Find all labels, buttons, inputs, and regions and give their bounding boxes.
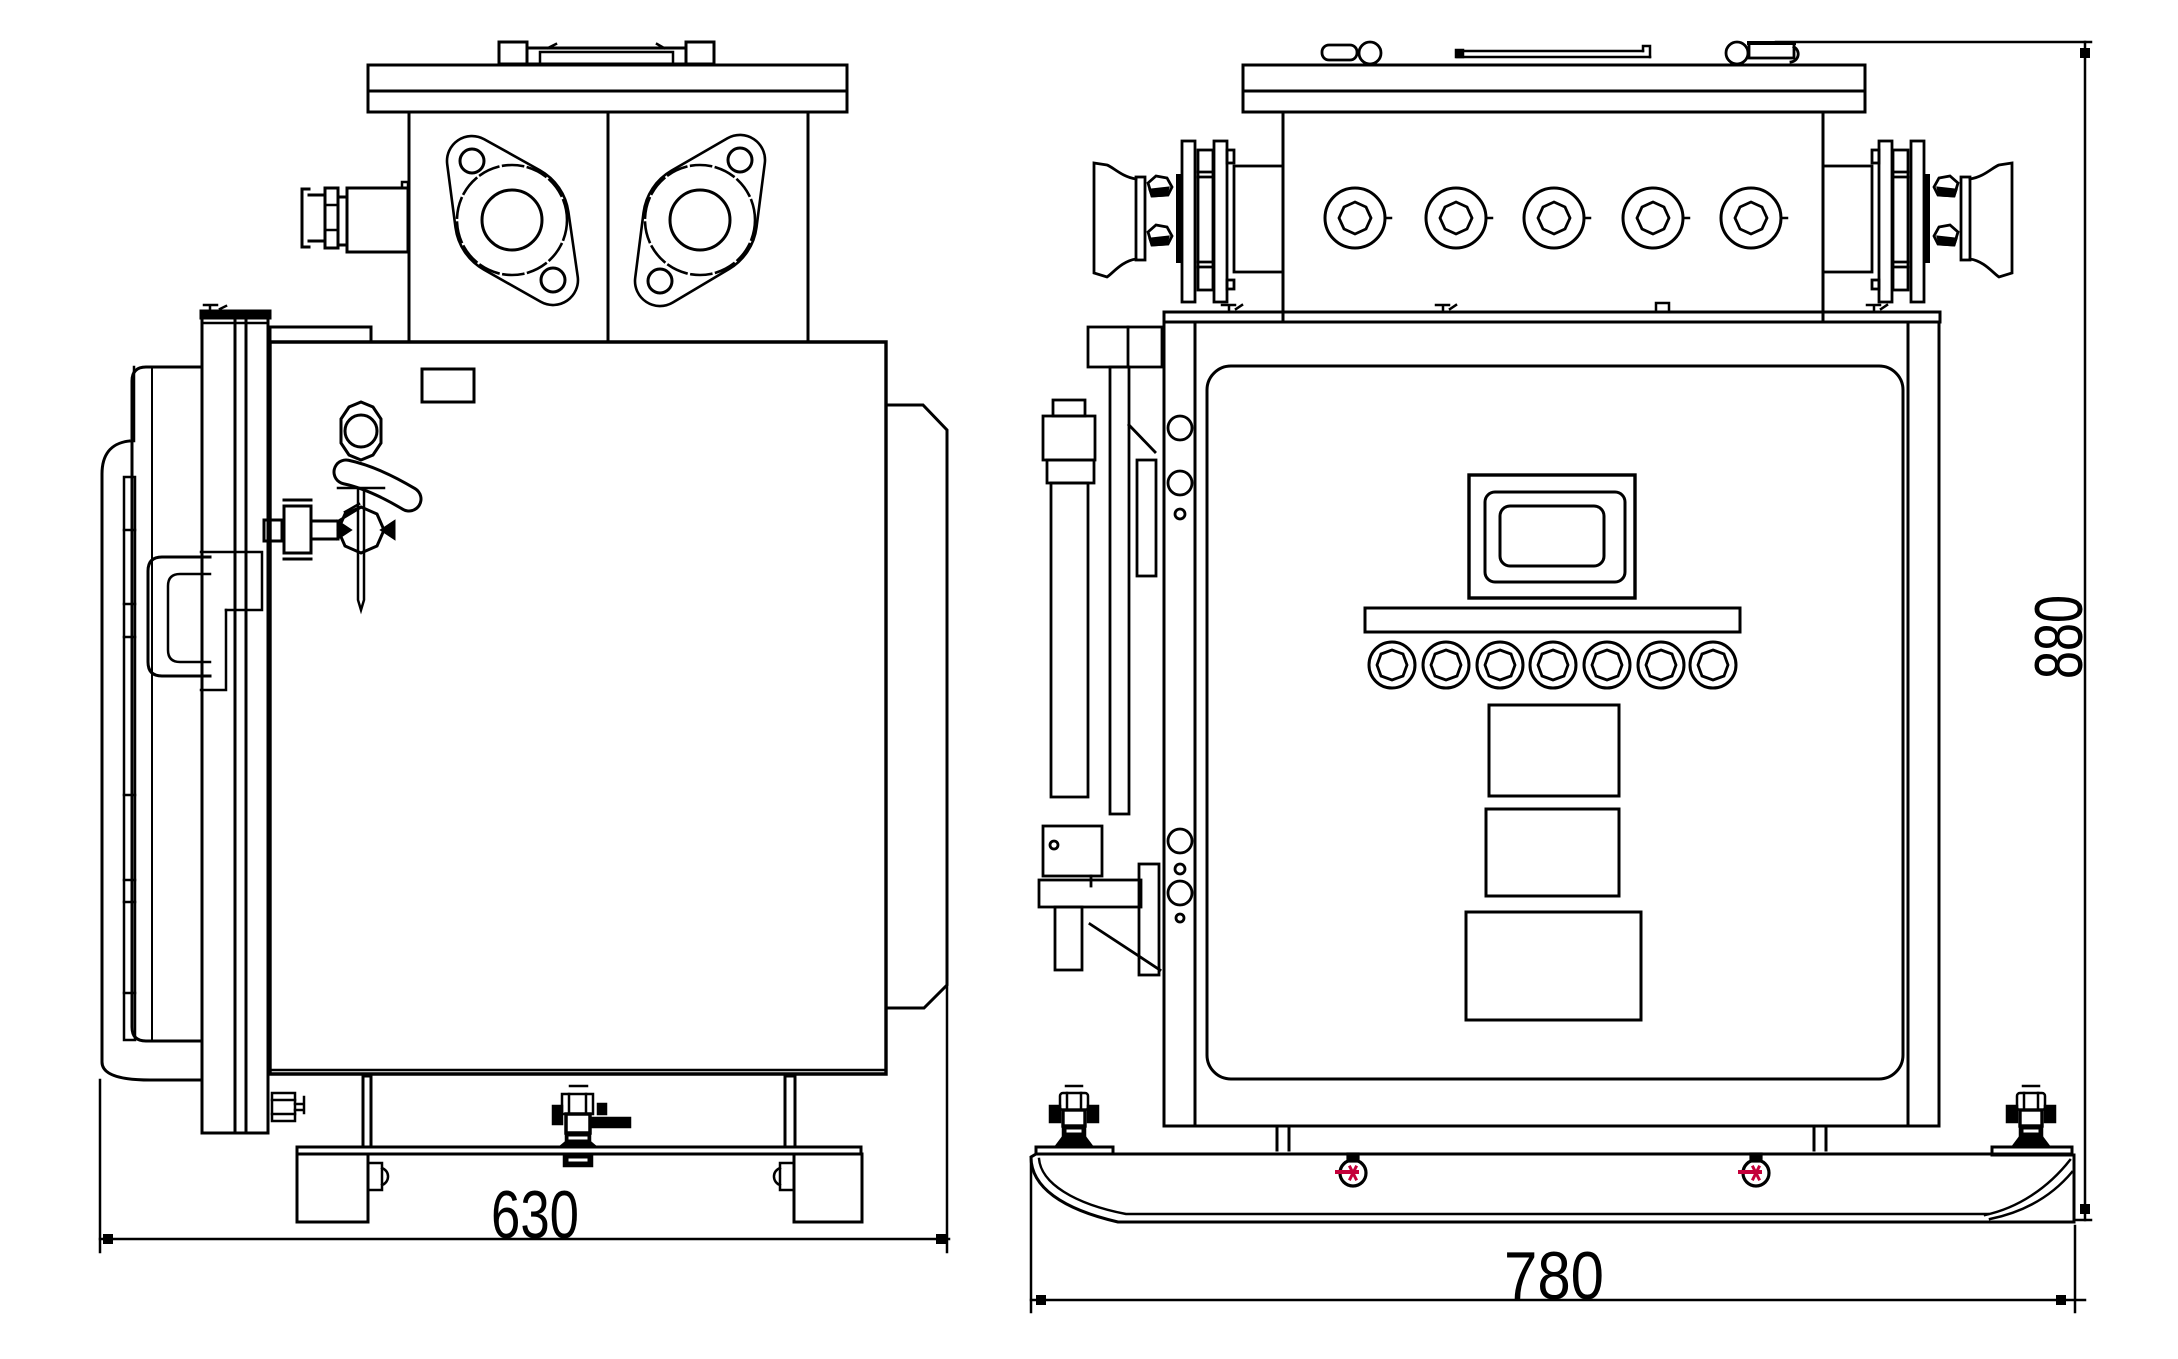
svg-text:630: 630 bbox=[491, 1177, 579, 1253]
svg-text:780: 780 bbox=[1504, 1238, 1604, 1314]
svg-text:880: 880 bbox=[2021, 595, 2097, 679]
